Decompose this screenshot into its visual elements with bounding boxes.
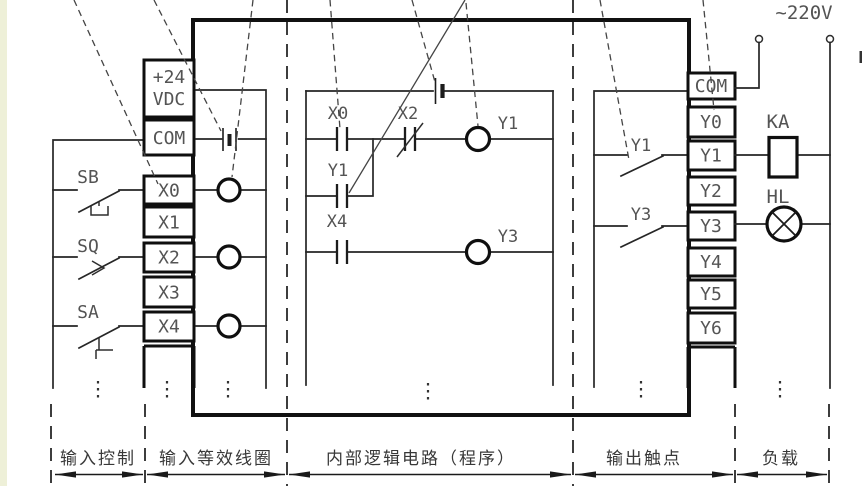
battery-icon — [223, 128, 236, 151]
ladder-logic-program: X0 X2 Y1 Y1 X4 Y3 — [306, 78, 553, 385]
ladder-y1-coil-label: Y1 — [498, 114, 518, 134]
lamp-hl-label: HL — [767, 186, 790, 208]
pushbutton-actuator-icon — [91, 201, 108, 215]
terminal-x3-label: X3 — [158, 283, 180, 304]
terminal-y3-label: Y3 — [700, 216, 722, 237]
output-contact-y1-label: Y1 — [631, 136, 651, 156]
ladder-x0-label: X0 — [328, 104, 348, 124]
terminal-x2-label: X2 — [158, 248, 180, 269]
output-contact-y3-label: Y3 — [631, 205, 651, 225]
input-terminal-strip: +24 VDC COM X0 X1 X2 X3 X4 — [144, 60, 194, 388]
input-equivalent-coil-zone — [196, 90, 266, 388]
page-edge-tint — [0, 0, 7, 486]
ladder-coil-y1-icon — [467, 128, 490, 151]
terminal-y4-label: Y4 — [700, 252, 722, 273]
terminal-x4-label: X4 — [158, 317, 180, 338]
output-contact-y1-icon — [594, 155, 688, 176]
terminal-x0-label: X0 — [158, 181, 180, 202]
input-control-circuit: SB SQ SA — [53, 140, 144, 388]
section-label-output-contacts: 输出触点 — [606, 449, 682, 468]
terminal-strip-continuation — [144, 346, 194, 388]
limit-switch-wedge-icon — [92, 261, 104, 275]
terminal-y1-label: Y1 — [700, 146, 722, 167]
section-label-internal-logic: 内部逻辑电路（程序） — [326, 449, 516, 468]
load-zone: ~220V KA HL — [735, 2, 834, 388]
section-label-input-control: 输入控制 — [60, 449, 136, 468]
ladder-y3-coil-label: Y3 — [498, 227, 518, 247]
terminal-strip-continuation — [688, 347, 735, 388]
lamp-hl-icon — [767, 207, 801, 241]
terminal-x1-label: X1 — [158, 213, 180, 234]
output-contact-y3-icon — [594, 226, 688, 247]
battery-icon — [436, 78, 443, 104]
ac-supply-label: ~220V — [775, 2, 832, 24]
terminal-y0-label: Y0 — [700, 112, 722, 133]
relay-ka-icon — [769, 138, 797, 178]
contact-x2-nc-slash — [397, 123, 423, 157]
contact-x4-icon — [337, 240, 347, 264]
terminal-y2-label: Y2 — [700, 181, 722, 202]
terminal-24vdc-label-1: +24 — [153, 67, 186, 88]
input-coil-x2-icon — [218, 246, 240, 268]
ac-terminal-left-icon — [756, 36, 763, 43]
cropped-edge-fragment — [860, 51, 863, 63]
output-contact-zone: Y1 Y3 — [594, 91, 688, 387]
contact-y1-icon — [337, 184, 347, 208]
relay-ka-label: KA — [767, 111, 790, 133]
ladder-x4-label: X4 — [327, 212, 347, 232]
input-coil-x0-icon — [218, 179, 240, 201]
switch-sb-label: SB — [77, 167, 99, 188]
ac-terminal-right-icon — [827, 36, 834, 43]
terminal-y5-label: Y5 — [700, 284, 722, 305]
terminal-com-left-label: COM — [153, 128, 186, 149]
section-label-load: 负载 — [762, 449, 800, 468]
output-terminal-strip: COM Y0 Y1 Y2 Y3 Y4 Y5 Y6 — [688, 73, 735, 388]
section-label-input-coils: 输入等效线圈 — [159, 449, 273, 468]
ladder-coil-y3-icon — [467, 241, 490, 264]
switch-sa-label: SA — [77, 302, 99, 323]
section-labels: 输入控制 输入等效线圈 内部逻辑电路（程序） 输出触点 负载 — [60, 449, 800, 468]
section-span-arrows — [55, 471, 827, 477]
terminal-y6-label: Y6 — [700, 318, 722, 339]
terminal-24vdc-label-2: VDC — [153, 89, 186, 110]
ladder-y1-contact-label: Y1 — [328, 161, 348, 181]
diagram-canvas: SB SQ SA +24 VDC COM X0 X1 X2 X3 X4 — [0, 0, 864, 486]
contact-x0-icon — [337, 127, 347, 151]
selector-actuator-icon — [96, 338, 113, 360]
switch-sq-label: SQ — [77, 236, 99, 257]
plc-io-wiring-diagram: SB SQ SA +24 VDC COM X0 X1 X2 X3 X4 — [0, 0, 864, 486]
input-coil-x4-icon — [218, 315, 240, 337]
continuation-dots — [98, 381, 780, 403]
